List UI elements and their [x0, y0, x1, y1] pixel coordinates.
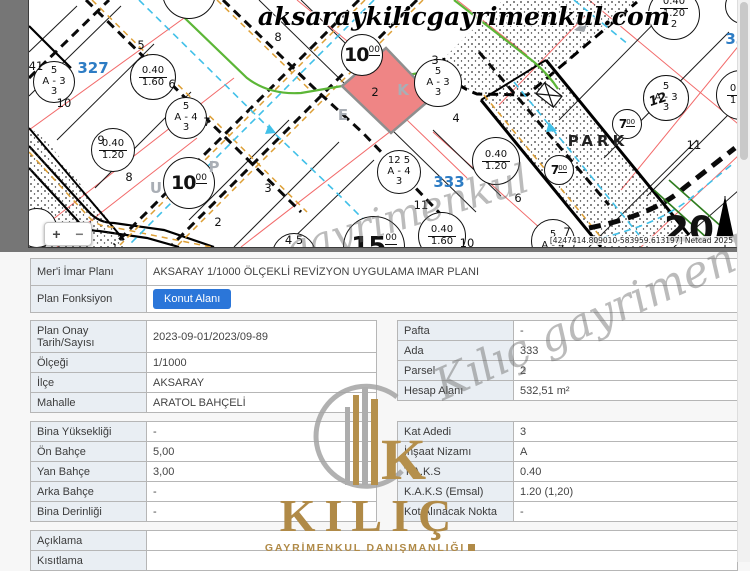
field-label: İlçe — [31, 373, 147, 393]
map-label: 9 — [97, 133, 104, 147]
map-label: 2 — [371, 85, 378, 99]
field-value: AKSARAY — [147, 373, 377, 393]
table-row: Yan Bahçe 3,00 — [31, 462, 377, 482]
field-label: Ada — [398, 341, 514, 361]
zoom-in-button[interactable]: + — [52, 227, 60, 241]
map-canvas: 5A - 330.401.605A - 430.401.20100010005A… — [28, 0, 738, 248]
map-label: 4 — [452, 111, 459, 125]
table-row: İlçe AKSARAY — [31, 373, 377, 393]
map-label: 11 — [414, 198, 429, 212]
field-label: Bina Derinliği — [31, 502, 147, 522]
imar-plan-viewer: 5A - 330.401.605A - 430.401.20100010005A… — [0, 0, 750, 562]
map-zoning-circle: 1500 — [343, 216, 405, 248]
table-row: Kot Alınacak Nokta - — [398, 502, 738, 522]
map-label: P — [209, 158, 220, 176]
field-value: - — [147, 482, 377, 502]
field-label: K.A.K.S (Emsal) — [398, 482, 514, 502]
table-row: Kısıtlama — [31, 551, 738, 571]
table-row: Bina Yüksekliği - — [31, 422, 377, 442]
map-label: 7 — [203, 115, 210, 129]
table-row: Bina Derinliği - — [31, 502, 377, 522]
table-row: Parsel 2 — [398, 361, 738, 381]
field-value: 2023-09-01/2023/09-89 — [147, 321, 377, 353]
map-zoning-circle: 1000 — [163, 157, 215, 209]
map-label: 5 — [137, 38, 144, 52]
field-value: 532,51 m² — [514, 381, 738, 401]
table-row: Ölçeği 1/1000 — [31, 353, 377, 373]
field-label: Ölçeği — [31, 353, 147, 373]
map-label: E — [338, 106, 348, 124]
field-value: - — [147, 422, 377, 442]
field-label: Bina Yüksekliği — [31, 422, 147, 442]
scrollbar-thumb[interactable] — [740, 2, 748, 160]
map-label: 10 — [460, 236, 475, 248]
table-row: Ada 333 — [398, 341, 738, 361]
table-row: Arka Bahçe - — [31, 482, 377, 502]
field-label: Yan Bahçe — [31, 462, 147, 482]
map-annotations: 5A - 330.401.605A - 430.401.20100010005A… — [29, 0, 738, 247]
parsel-table: Pafta - Ada 333 Parsel 2 Hesap Alanı 532… — [397, 320, 738, 401]
field-value: 2 — [514, 361, 738, 381]
field-label: Kot Alınacak Nokta — [398, 502, 514, 522]
table-row: İnşaat Nizamı A — [398, 442, 738, 462]
field-value: 3,00 — [147, 462, 377, 482]
field-label: Arka Bahçe — [31, 482, 147, 502]
map-label: 41 — [29, 59, 44, 73]
plan-info-table: Mer'i İmar Planı AKSARAY 1/1000 ÖLÇEKLİ … — [30, 258, 738, 313]
yapilasma-right-table: Kat Adedi 3 İnşaat Nizamı A T.A.K.S 0.40… — [397, 421, 738, 522]
map-label: PARK — [568, 132, 628, 150]
field-label: Mer'i İmar Planı — [31, 259, 147, 286]
table-row: Ön Bahçe 5,00 — [31, 442, 377, 462]
field-label: Ön Bahçe — [31, 442, 147, 462]
table-row: Mahalle ARATOL BAHÇELİ — [31, 393, 377, 413]
field-value: 333 — [514, 341, 738, 361]
field-label: Plan Onay Tarih/Sayısı — [31, 321, 147, 353]
map-label: 6 — [514, 191, 521, 205]
field-label: Kısıtlama — [31, 551, 147, 571]
table-row: K.A.K.S (Emsal) 1.20 (1,20) — [398, 482, 738, 502]
table-row: Açıklama — [31, 531, 738, 551]
map-label: K — [397, 81, 409, 99]
map-label: U — [150, 179, 162, 197]
map-label: 6 — [168, 77, 175, 91]
field-value: 3 — [514, 422, 738, 442]
field-value: AKSARAY 1/1000 ÖLÇEKLİ REVİZYON UYGULAMA… — [147, 259, 738, 286]
map-label: 333 — [433, 173, 464, 191]
table-row: Mer'i İmar Planı AKSARAY 1/1000 ÖLÇEKLİ … — [31, 259, 738, 286]
map-label: 327 — [77, 59, 108, 77]
field-value: - — [514, 321, 738, 341]
map-coordinates-note: [4247414.809010-583959.613197] Netcad 20… — [548, 236, 735, 245]
field-value — [147, 551, 738, 571]
field-value: 0.40 — [514, 462, 738, 482]
field-label: Hesap Alanı — [398, 381, 514, 401]
map-zoning-circle: 5A - 43 — [165, 97, 207, 139]
map-zoning-circle: 12 5A - 43 — [377, 150, 421, 194]
map-label: 8 — [125, 170, 132, 184]
map-label: 3 — [264, 181, 271, 195]
field-value: 1.20 (1,20) — [514, 482, 738, 502]
map-label: 8 — [274, 30, 281, 44]
field-label: Mahalle — [31, 393, 147, 413]
map-zoning-circle: 700 — [544, 155, 574, 185]
field-value: 1/1000 — [147, 353, 377, 373]
field-value: A — [514, 442, 738, 462]
field-value: - — [147, 502, 377, 522]
vertical-scrollbar[interactable] — [737, 0, 750, 562]
table-row: Hesap Alanı 532,51 m² — [398, 381, 738, 401]
field-value: 5,00 — [147, 442, 377, 462]
table-row: Kat Adedi 3 — [398, 422, 738, 442]
onay-table: Plan Onay Tarih/Sayısı 2023-09-01/2023/0… — [30, 320, 377, 413]
map-zoning-circle: 0.401.20 — [472, 137, 520, 185]
field-value — [147, 531, 738, 551]
map-label: 10 — [57, 96, 72, 110]
field-value: - — [514, 502, 738, 522]
notes-table: Açıklama Kısıtlama — [30, 530, 738, 571]
field-label: Plan Fonksiyon — [31, 286, 147, 313]
yapilasma-left-table: Bina Yüksekliği - Ön Bahçe 5,00 Yan Bahç… — [30, 421, 377, 522]
table-row: Plan Onay Tarih/Sayısı 2023-09-01/2023/0… — [31, 321, 377, 353]
map-zoom-control[interactable]: + − — [44, 222, 92, 246]
map-label: 3 — [431, 53, 438, 67]
domain-watermark: aksaraykilicgayrimenkul.com — [204, 2, 724, 31]
map-zoning-circle: 1000 — [341, 34, 383, 76]
field-label: Parsel — [398, 361, 514, 381]
table-row: T.A.K.S 0.40 — [398, 462, 738, 482]
plan-fonksiyon-button[interactable]: Konut Alanı — [153, 289, 231, 309]
table-row: Pafta - — [398, 321, 738, 341]
field-label: T.A.K.S — [398, 462, 514, 482]
map-viewport[interactable]: 5A - 330.401.605A - 430.401.20100010005A… — [0, 0, 738, 252]
field-label: Pafta — [398, 321, 514, 341]
zoom-out-button[interactable]: − — [75, 227, 83, 241]
field-label: İnşaat Nizamı — [398, 442, 514, 462]
map-label: 4 5 — [285, 233, 303, 247]
field-value: ARATOL BAHÇELİ — [147, 393, 377, 413]
table-row: Plan Fonksiyon Konut Alanı — [31, 286, 738, 313]
map-label: 2 — [214, 215, 221, 229]
field-label: Kat Adedi — [398, 422, 514, 442]
map-label: 11 — [687, 138, 702, 152]
field-label: Açıklama — [31, 531, 147, 551]
map-zoning-circle: 0.401.60 — [716, 70, 738, 120]
